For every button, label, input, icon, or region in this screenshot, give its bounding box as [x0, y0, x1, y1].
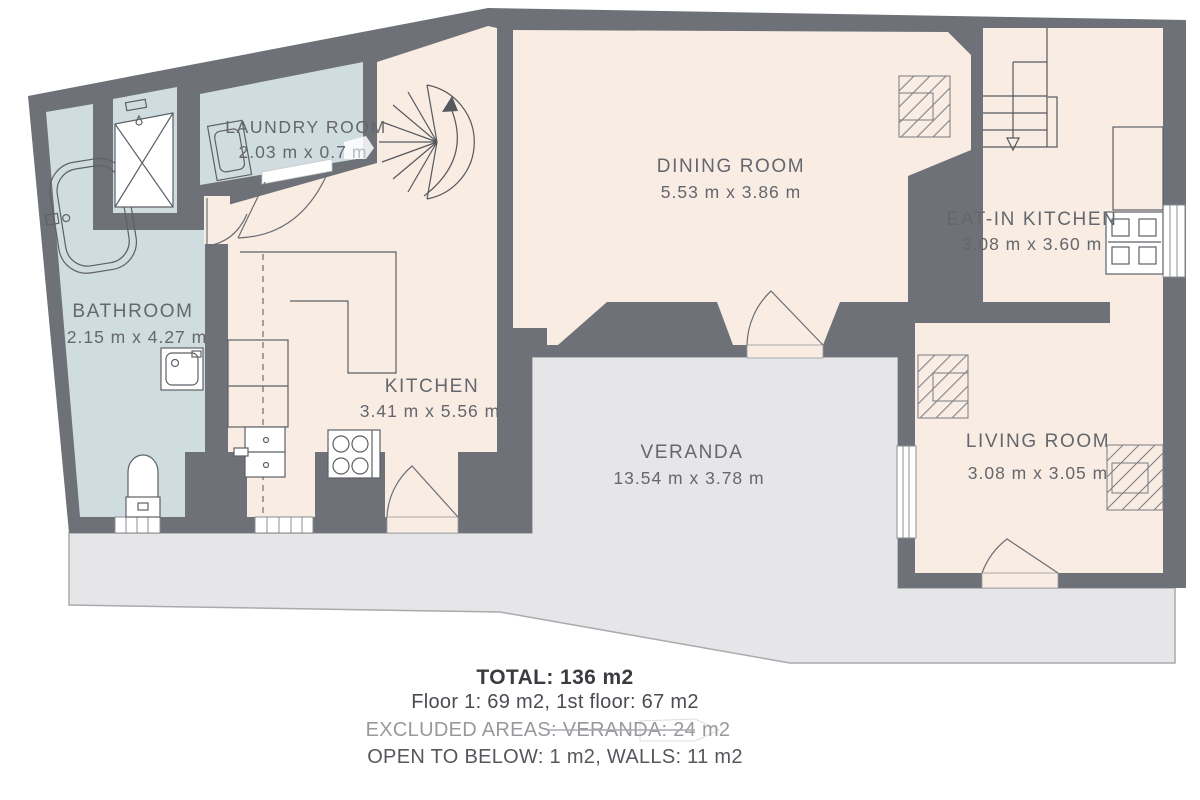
toilet-icon	[126, 455, 160, 517]
window-hall	[255, 517, 313, 533]
room-dims-kitchen: 3.41 m x 5.56 m	[360, 401, 500, 421]
room-dims-bathroom: 2.15 m x 4.27 m	[67, 327, 207, 347]
bathroom-door-opening	[204, 196, 230, 244]
room-dims-dining: 5.53 m x 3.86 m	[661, 182, 801, 202]
living-door-threshold	[982, 573, 1058, 588]
room-dims-living: 3.08 m x 3.05 m	[968, 463, 1108, 483]
room-label-laundry: LAUNDRY ROOM	[225, 117, 387, 137]
room-label-veranda: VERANDA	[640, 442, 743, 463]
window-bathroom	[115, 517, 160, 533]
room-label-dining: DINING ROOM	[657, 156, 806, 177]
room-label-living: LIVING ROOM	[966, 431, 1110, 452]
floor-plan-page: BATHROOM 2.15 m x 4.27 m LAUNDRY ROOM 2.…	[0, 0, 1200, 800]
summary-total: TOTAL: 136 m2	[476, 666, 633, 689]
summary-block: TOTAL: 136 m2 Floor 1: 69 m2, 1st floor:…	[366, 666, 743, 768]
room-dims-eat-in-kitchen: 3.08 m x 3.60 m	[962, 234, 1102, 254]
summary-floors: Floor 1: 69 m2, 1st floor: 67 m2	[411, 691, 699, 713]
stove-icon	[328, 430, 380, 478]
floor-plan-canvas: BATHROOM 2.15 m x 4.27 m LAUNDRY ROOM 2.…	[0, 0, 1200, 800]
bathroom-sink-icon	[161, 348, 203, 390]
window-living-room	[897, 446, 916, 538]
room-dims-veranda: 13.54 m x 3.78 m	[613, 468, 764, 488]
room-label-kitchen: KITCHEN	[385, 376, 480, 397]
summary-open-to-below: OPEN TO BELOW: 1 m2, WALLS: 11 m2	[367, 746, 743, 768]
passage-opening	[1110, 302, 1163, 323]
window-eat-in-kitchen	[1163, 205, 1185, 277]
room-label-eat-in-kitchen: EAT-IN KITCHEN	[947, 209, 1118, 230]
kitchen-door-threshold	[387, 517, 458, 533]
room-dims-laundry-main: 2.03 m x 0.7	[239, 142, 347, 162]
room-dims-laundry-suffix: m	[352, 142, 368, 162]
dining-door-threshold	[747, 345, 823, 358]
room-label-bathroom: BATHROOM	[72, 301, 193, 322]
